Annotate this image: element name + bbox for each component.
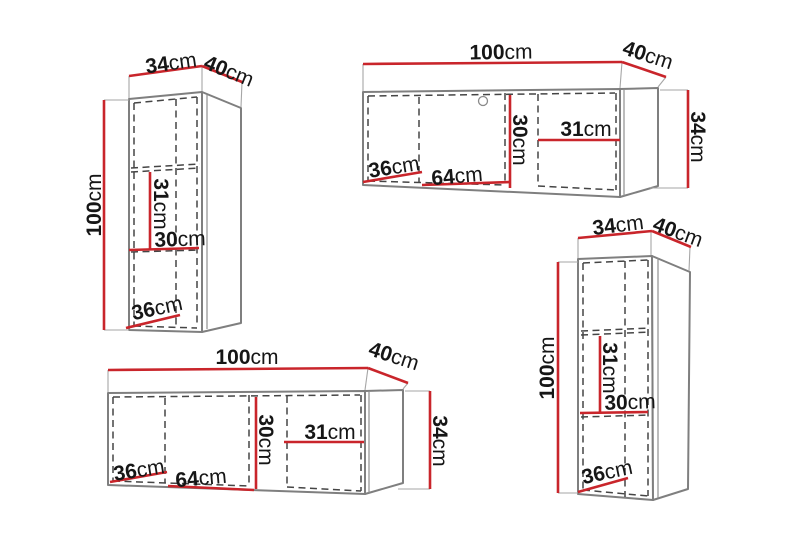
label-height: 100cm [83,173,106,236]
cabinet-tall-bottom-right: 34cm 40cm 100cm 31cm 30cm 36cm [536,211,706,500]
dimension-diagram-canvas: 34cm 40cm 100cm 31cm 30cm 36cm [0,0,800,533]
label-height: 100cm [536,336,559,399]
cabinet-wide-top-right: 100cm 40cm 34cm 30cm 31cm 36cm 64cm [363,37,709,197]
label-inner-width: 30cm [154,227,206,252]
cabinet-outline [129,92,241,332]
label-depth: 40cm [201,51,257,92]
label-inner-width-left: 64cm [174,465,227,492]
cabinet-tall-top-left: 34cm 40cm 100cm 31cm 30cm 36cm [83,49,257,332]
furniture-dimension-sheet: 34cm 40cm 100cm 31cm 30cm 36cm [0,0,800,533]
label-inner-height: 31cm [149,178,172,229]
cabinet-wide-bottom-left: 100cm 40cm 34cm 30cm 31cm 36cm 64cm [108,338,451,494]
label-inner-width-right: 31cm [304,421,355,444]
label-inner-width-left: 64cm [430,163,483,190]
label-inner-width-right: 31cm [560,118,611,141]
label-width: 34cm [144,49,198,79]
label-width: 100cm [215,346,278,369]
label-depth: 40cm [620,37,676,75]
label-height: 34cm [428,415,451,466]
label-inner-width: 30cm [604,390,656,415]
label-height: 34cm [686,111,709,162]
label-width: 100cm [469,40,532,64]
label-width: 34cm [591,211,645,240]
label-depth: 40cm [650,213,706,252]
label-inner-height: 31cm [598,342,621,393]
label-inner-height: 30cm [508,114,531,165]
label-inner-height: 30cm [254,414,277,465]
